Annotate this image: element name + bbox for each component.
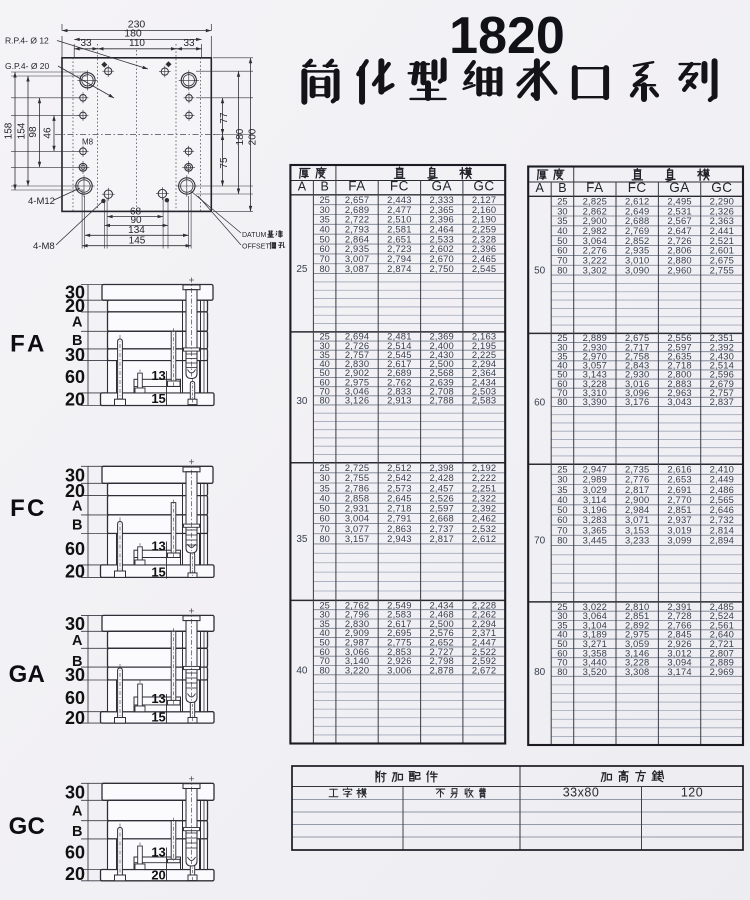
svg-text:3,233: 3,233 (625, 535, 649, 546)
svg-text:F: F (10, 331, 25, 358)
svg-text:13: 13 (151, 845, 165, 860)
svg-text:1820: 1820 (449, 7, 565, 65)
svg-text:40: 40 (319, 224, 329, 234)
svg-text:35: 35 (296, 534, 308, 545)
svg-text:B: B (320, 180, 328, 194)
svg-text:C: C (28, 813, 45, 840)
svg-text:33x80: 33x80 (563, 786, 600, 800)
svg-text:70: 70 (534, 536, 546, 547)
svg-text:80: 80 (557, 536, 567, 546)
svg-text:3,090: 3,090 (625, 264, 649, 275)
svg-text:35: 35 (319, 483, 329, 493)
svg-text:46: 46 (43, 127, 54, 139)
svg-text:70: 70 (557, 525, 567, 535)
svg-text:3,126: 3,126 (345, 395, 369, 406)
svg-text:3,302: 3,302 (583, 264, 607, 275)
svg-text:80: 80 (557, 265, 567, 275)
svg-text:25: 25 (319, 195, 329, 205)
svg-text:2,545: 2,545 (472, 263, 496, 274)
svg-text:80: 80 (319, 665, 329, 675)
svg-text:25: 25 (557, 196, 567, 206)
svg-text:15: 15 (151, 710, 165, 725)
svg-text:60: 60 (319, 514, 329, 524)
svg-text:20: 20 (65, 389, 85, 409)
svg-text:145: 145 (129, 236, 146, 247)
svg-text:80: 80 (319, 396, 329, 406)
svg-text:B: B (558, 181, 566, 195)
svg-text:30: 30 (65, 665, 85, 685)
svg-text:80: 80 (557, 667, 567, 677)
svg-text:2,583: 2,583 (472, 395, 496, 406)
svg-text:2,672: 2,672 (472, 664, 496, 675)
svg-text:B: B (72, 518, 82, 534)
svg-text:M8: M8 (82, 138, 94, 147)
svg-text:40: 40 (557, 226, 567, 236)
svg-text:A: A (536, 181, 545, 195)
svg-text:4-M8: 4-M8 (33, 241, 55, 252)
svg-text:60: 60 (65, 539, 85, 559)
svg-text:2,750: 2,750 (430, 263, 454, 274)
svg-text:3,157: 3,157 (345, 533, 369, 544)
svg-text:A: A (72, 499, 83, 515)
svg-text:25: 25 (296, 264, 308, 275)
svg-text:30: 30 (65, 614, 85, 634)
svg-text:50: 50 (534, 266, 546, 277)
svg-text:4-M12: 4-M12 (28, 196, 55, 207)
svg-text:3,006: 3,006 (387, 664, 411, 675)
svg-text:C: C (27, 495, 44, 522)
svg-text:70: 70 (319, 254, 329, 264)
svg-text:33: 33 (183, 38, 195, 49)
svg-text:R.P.4- Ø 12: R.P.4- Ø 12 (5, 36, 49, 46)
svg-text:158: 158 (4, 122, 15, 139)
svg-text:B: B (72, 824, 82, 840)
svg-text:G: G (9, 661, 28, 688)
svg-text:2,612: 2,612 (472, 533, 496, 544)
svg-text:3,220: 3,220 (345, 664, 369, 675)
svg-text:A: A (27, 331, 44, 358)
svg-text:2,913: 2,913 (387, 395, 411, 406)
svg-text:3,087: 3,087 (345, 263, 369, 274)
svg-text:A: A (72, 633, 83, 649)
svg-text:3,445: 3,445 (583, 535, 607, 546)
svg-text:2,969: 2,969 (710, 666, 734, 677)
svg-text:25: 25 (319, 463, 329, 473)
svg-text:50: 50 (557, 505, 567, 515)
svg-text:13: 13 (151, 539, 165, 554)
svg-text:60: 60 (65, 843, 85, 863)
svg-text:70: 70 (319, 524, 329, 534)
svg-text:30: 30 (319, 205, 329, 215)
svg-text:50: 50 (319, 234, 329, 244)
svg-text:20: 20 (65, 708, 85, 728)
svg-text:DATUM: DATUM (242, 232, 267, 239)
svg-text:13: 13 (151, 691, 165, 706)
svg-text:A: A (72, 804, 83, 820)
svg-text:80: 80 (534, 667, 546, 678)
svg-text:3,176: 3,176 (625, 396, 649, 407)
svg-text:13: 13 (151, 368, 165, 383)
svg-text:35: 35 (557, 216, 567, 226)
svg-text:75: 75 (219, 157, 230, 169)
svg-text:20: 20 (65, 296, 85, 316)
svg-text:40: 40 (319, 493, 329, 503)
svg-text:15: 15 (151, 391, 165, 406)
svg-text:3,043: 3,043 (667, 396, 691, 407)
svg-text:30: 30 (65, 345, 85, 365)
svg-text:OFFSET: OFFSET (242, 244, 270, 251)
svg-text:30: 30 (65, 783, 85, 803)
svg-text:3,099: 3,099 (667, 535, 691, 546)
svg-text:30: 30 (557, 475, 567, 485)
svg-text:180: 180 (235, 128, 246, 145)
svg-text:60: 60 (65, 367, 85, 387)
svg-text:G.P.4- Ø 20: G.P.4- Ø 20 (5, 61, 50, 71)
svg-text:40: 40 (557, 495, 567, 505)
svg-text:30: 30 (319, 473, 329, 483)
svg-text:20: 20 (151, 868, 165, 883)
svg-text:2,874: 2,874 (387, 263, 411, 274)
svg-text:60: 60 (65, 688, 85, 708)
svg-text:20: 20 (65, 864, 85, 884)
svg-text:2,878: 2,878 (430, 664, 454, 675)
svg-text:2,894: 2,894 (710, 535, 734, 546)
svg-text:2,788: 2,788 (430, 395, 454, 406)
svg-text:15: 15 (151, 565, 165, 580)
svg-text:A: A (298, 180, 307, 194)
svg-text:60: 60 (557, 246, 567, 256)
svg-text:2,943: 2,943 (387, 533, 411, 544)
svg-text:G: G (9, 813, 28, 840)
svg-text:134: 134 (128, 225, 145, 236)
svg-text:3,390: 3,390 (583, 396, 607, 407)
svg-text:50: 50 (319, 504, 329, 514)
svg-text:60: 60 (534, 397, 546, 408)
svg-text:25: 25 (557, 464, 567, 474)
svg-text:154: 154 (17, 122, 28, 139)
svg-text:60: 60 (319, 244, 329, 254)
svg-text:2,837: 2,837 (710, 396, 734, 407)
svg-text:80: 80 (319, 264, 329, 274)
svg-text:50: 50 (557, 236, 567, 246)
svg-text:20: 20 (65, 561, 85, 581)
svg-text:60: 60 (557, 515, 567, 525)
svg-text:30: 30 (557, 206, 567, 216)
svg-text:35: 35 (557, 485, 567, 495)
svg-text:200: 200 (248, 128, 259, 145)
svg-text:40: 40 (296, 666, 308, 677)
svg-text:30: 30 (296, 396, 308, 407)
svg-text:33: 33 (80, 38, 92, 49)
svg-text:2,960: 2,960 (667, 264, 691, 275)
svg-text:3,520: 3,520 (583, 666, 607, 677)
svg-text:80: 80 (319, 534, 329, 544)
svg-text:A: A (72, 315, 83, 331)
svg-text:70: 70 (557, 256, 567, 266)
svg-text:80: 80 (557, 397, 567, 407)
svg-text:120: 120 (681, 786, 703, 800)
svg-text:A: A (28, 661, 45, 688)
svg-text:2,755: 2,755 (710, 264, 734, 275)
svg-text:35: 35 (319, 215, 329, 225)
svg-text:98: 98 (28, 126, 39, 138)
svg-text:77: 77 (219, 112, 230, 124)
svg-text:F: F (10, 495, 25, 522)
svg-text:3,174: 3,174 (667, 666, 691, 677)
svg-text:2,817: 2,817 (430, 533, 454, 544)
svg-text:3,308: 3,308 (625, 666, 649, 677)
svg-text:110: 110 (129, 38, 145, 49)
